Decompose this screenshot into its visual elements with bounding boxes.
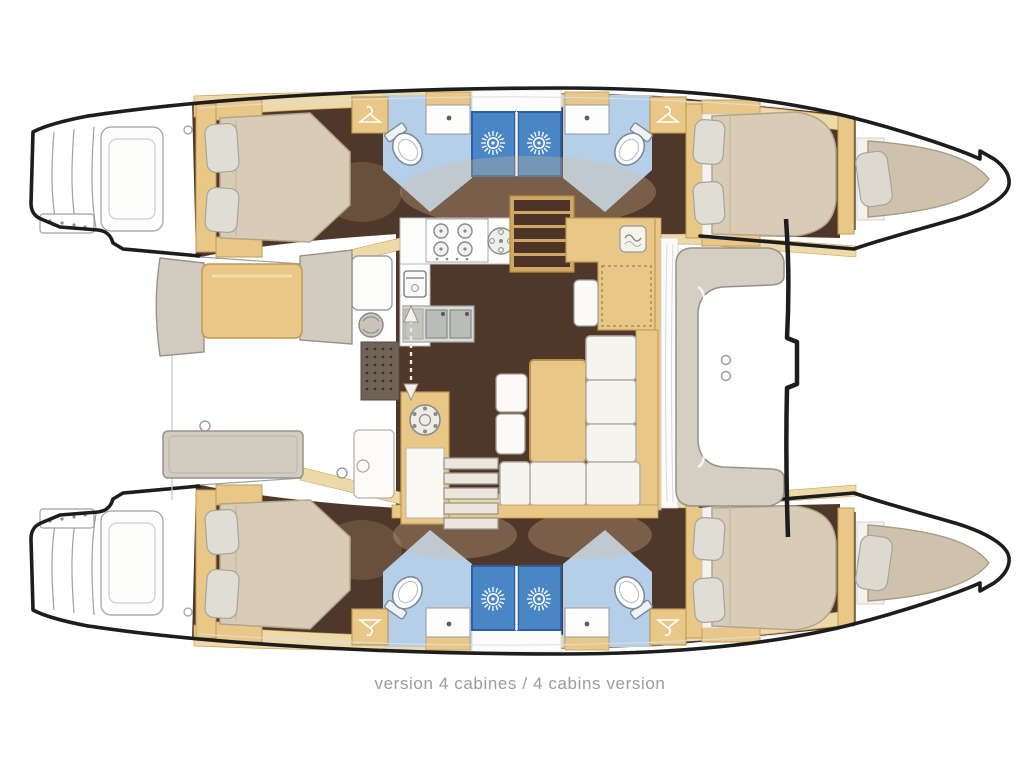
forward-crossbeam	[786, 219, 797, 537]
cockpit-table	[163, 431, 303, 478]
floorplan-drawing	[0, 0, 1024, 768]
bench-arm	[300, 250, 352, 344]
washer-cabinet	[401, 392, 449, 524]
cockpit-locker	[354, 430, 394, 498]
stairs-starboard-hull	[444, 458, 498, 529]
stove	[426, 219, 488, 262]
oven-icon	[404, 271, 426, 297]
aft-cockpit	[156, 250, 394, 500]
chart-table-icon	[620, 226, 646, 252]
stairs-port-hull	[510, 196, 574, 272]
cockpit-locker	[352, 256, 392, 310]
caption: version 4 cabines / 4 cabins version	[260, 674, 780, 694]
washer-icon	[410, 405, 440, 435]
forward-cockpit-seat	[676, 248, 784, 506]
bench-arm	[156, 258, 204, 356]
stool	[496, 414, 525, 454]
stool	[496, 374, 527, 412]
catamaran-floorplan: version 4 cabines / 4 cabins version	[0, 0, 1024, 768]
nav-seat	[574, 280, 598, 326]
door-mat	[361, 342, 399, 400]
saloon-table	[530, 360, 586, 462]
deck-fitting-icon	[359, 313, 383, 337]
